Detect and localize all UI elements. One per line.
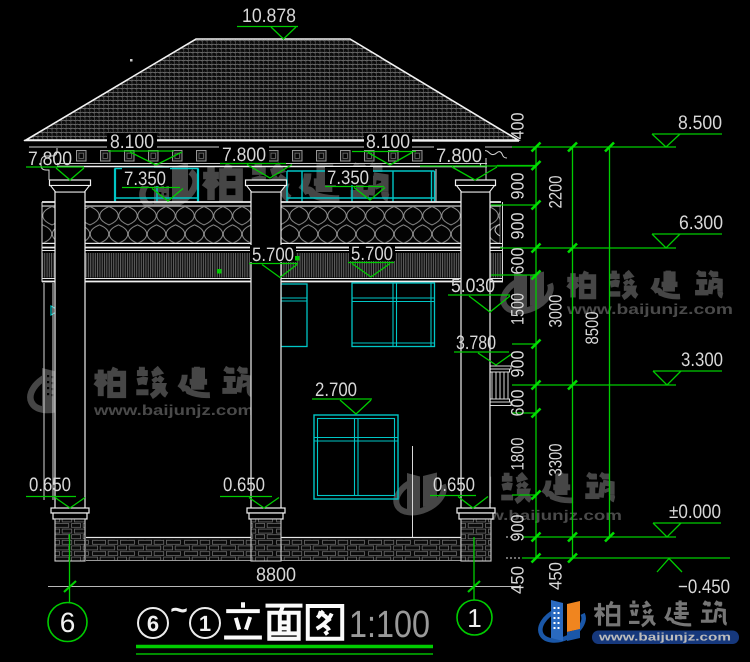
svg-text:6: 6 [147,611,159,636]
svg-text:900: 900 [508,213,528,240]
svg-text:0.650: 0.650 [433,474,475,496]
svg-text:3.300: 3.300 [681,349,723,371]
svg-text:3300: 3300 [546,444,566,477]
svg-text:www.baijunjz.com: www.baijunjz.com [93,403,254,419]
svg-text:1:100: 1:100 [349,604,430,646]
svg-text:1: 1 [467,603,481,633]
svg-text:2.700: 2.700 [315,379,357,401]
svg-text:0.650: 0.650 [29,474,71,496]
svg-text:600: 600 [508,390,528,417]
svg-text:2200: 2200 [546,176,566,209]
svg-text:8500: 8500 [582,312,602,345]
svg-text:7.350: 7.350 [327,167,369,189]
svg-text:5.700: 5.700 [351,243,393,265]
svg-text:3.780: 3.780 [456,332,496,354]
svg-text:7.350: 7.350 [124,168,166,190]
svg-text:600: 600 [508,248,528,275]
svg-text:450: 450 [508,566,528,594]
svg-text:~: ~ [170,594,188,627]
svg-text:900: 900 [508,351,528,378]
svg-text:1800: 1800 [508,438,528,471]
svg-text:3000: 3000 [546,295,566,328]
svg-text:7.800: 7.800 [28,148,72,170]
svg-text:8.500: 8.500 [678,112,722,134]
svg-text:7.800: 7.800 [222,144,266,166]
svg-text:−0.450: −0.450 [678,576,730,598]
svg-text:8.100: 8.100 [366,131,410,153]
svg-text:www.baijunjz.com: www.baijunjz.com [598,632,732,644]
svg-text:10.878: 10.878 [242,5,296,27]
svg-text:8800: 8800 [256,564,296,586]
svg-text:1: 1 [199,611,211,636]
svg-text:1500: 1500 [508,293,528,325]
svg-text:6.300: 6.300 [679,212,723,234]
svg-text:8.100: 8.100 [110,131,154,153]
svg-text:5.030: 5.030 [451,275,495,297]
svg-text:7.800: 7.800 [436,145,482,167]
svg-text:±0.000: ±0.000 [669,501,721,523]
svg-text:0.650: 0.650 [223,474,265,496]
svg-text:900: 900 [508,173,528,200]
svg-text:400: 400 [508,113,528,140]
svg-text:5.700: 5.700 [252,244,294,266]
svg-text:6: 6 [60,607,76,638]
svg-text:450: 450 [546,562,566,590]
